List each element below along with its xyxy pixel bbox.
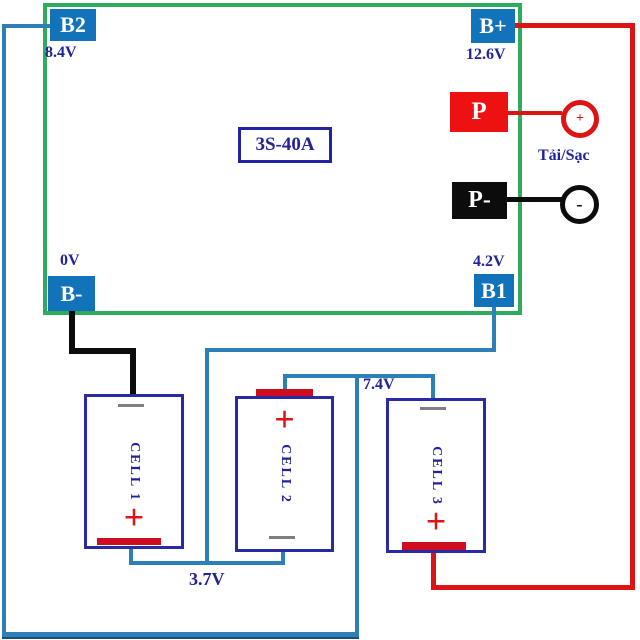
- wire-cell3plus-drop: [431, 549, 436, 588]
- wire-bplus-horizontal: [513, 23, 635, 28]
- terminal-b1-label: B1: [481, 278, 507, 304]
- terminal-p-label: P: [471, 98, 486, 126]
- terminal-bplus: B+: [471, 9, 515, 43]
- cell-3: CELL 3 +: [386, 398, 486, 553]
- bms-wiring-diagram: B2 8.4V B+ 12.6V B- 0V B1 4.2V P P- 3S-4…: [0, 0, 640, 640]
- cell3-positive-bar: [402, 542, 466, 550]
- terminal-bminus-label: B-: [61, 281, 83, 307]
- cell1-label: CELL 1: [126, 442, 142, 502]
- wire-b2-riser: [355, 377, 359, 635]
- connector-positive-ring: +: [561, 100, 599, 138]
- cell2-plus-mark: +: [274, 401, 295, 437]
- wire-b2-stub: [2, 24, 50, 28]
- wire-b2-bottom-horizontal: [2, 632, 359, 639]
- wire-74-horizontal: [283, 374, 435, 378]
- wire-pminus-stub: [505, 197, 562, 202]
- wire-37-horizontal: [129, 561, 285, 565]
- cell3-plus-mark: +: [426, 503, 447, 539]
- minus-icon: -: [577, 194, 583, 215]
- terminal-b1: B1: [474, 274, 514, 307]
- wire-b1-drop: [205, 348, 209, 565]
- cell1-minus-mark: [118, 404, 144, 407]
- voltage-b2: 8.4V: [45, 44, 77, 62]
- voltage-bminus: 0V: [60, 252, 80, 270]
- terminal-b2-label: B2: [60, 12, 86, 38]
- voltage-b1: 4.2V: [473, 253, 505, 271]
- connector-negative-ring: -: [560, 185, 599, 224]
- wire-bplus-right-vertical: [630, 23, 635, 590]
- wire-bminus-horizontal: [69, 348, 136, 354]
- wire-b1-stub: [492, 306, 496, 351]
- terminal-pminus-label: P-: [468, 187, 491, 214]
- cell1-positive-bar: [97, 538, 161, 545]
- wire-b2-left-vertical: [2, 24, 6, 634]
- cell-2: + CELL 2: [235, 396, 334, 552]
- wire-bminus-drop2: [130, 348, 136, 398]
- voltage-bplus: 12.6V: [466, 46, 506, 64]
- cell3-minus-mark: [420, 407, 446, 410]
- cell1-plus-mark: +: [124, 499, 145, 535]
- terminal-p: P: [450, 92, 508, 132]
- model-label-box: 3S-40A: [238, 127, 332, 163]
- load-charge-label: Tải/Sạc: [538, 147, 590, 165]
- junction-74v-label: 7.4V: [363, 376, 395, 394]
- junction-37v-label: 3.7V: [189, 569, 225, 590]
- terminal-pminus: P-: [452, 182, 507, 219]
- wire-b1-horizontal: [205, 348, 496, 352]
- cell-1: CELL 1 +: [84, 394, 184, 549]
- terminal-b2: B2: [50, 9, 96, 41]
- wire-bplus-bottom-horizontal: [431, 585, 635, 590]
- cell2-minus-mark: [269, 536, 295, 539]
- cell2-label: CELL 2: [277, 444, 293, 504]
- plus-icon: +: [576, 111, 584, 127]
- wire-p-stub: [506, 111, 562, 115]
- model-label: 3S-40A: [255, 134, 314, 156]
- wire-cell3minus-down: [431, 374, 435, 401]
- cell3-label: CELL 3: [428, 446, 444, 506]
- cell2-positive-bar: [256, 389, 313, 396]
- terminal-bminus: B-: [48, 276, 95, 311]
- terminal-bplus-label: B+: [479, 13, 506, 39]
